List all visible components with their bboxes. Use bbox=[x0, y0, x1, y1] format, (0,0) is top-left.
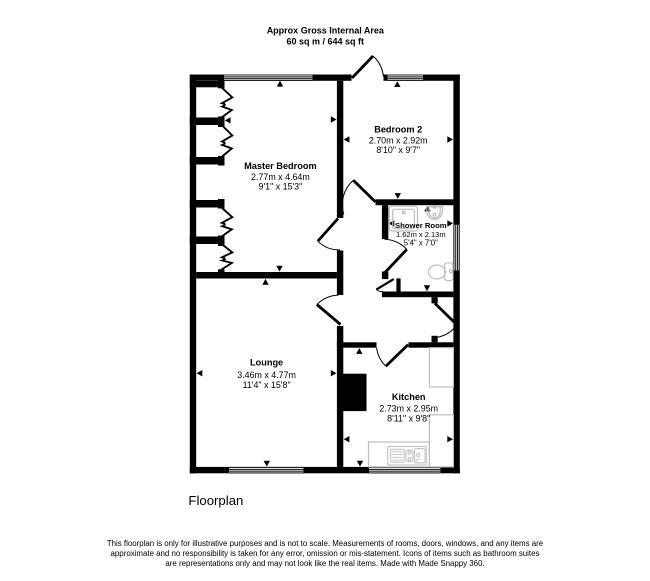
svg-text:Floorplan: Floorplan bbox=[188, 493, 243, 508]
svg-text:11'4" x 15'8": 11'4" x 15'8" bbox=[243, 380, 291, 390]
svg-text:2.70m x 2.92m: 2.70m x 2.92m bbox=[369, 135, 428, 145]
svg-text:Master Bedroom: Master Bedroom bbox=[244, 161, 317, 171]
svg-text:9'1" x 15'3": 9'1" x 15'3" bbox=[259, 181, 303, 191]
svg-text:5'4" x 7'0": 5'4" x 7'0" bbox=[404, 239, 438, 248]
svg-text:2.77m x 4.64m: 2.77m x 4.64m bbox=[251, 172, 310, 182]
svg-text:8'10" x 9'7": 8'10" x 9'7" bbox=[376, 145, 420, 155]
svg-text:are representations only and m: are representations only and may not loo… bbox=[165, 559, 484, 568]
svg-text:3.46m x 4.77m: 3.46m x 4.77m bbox=[237, 370, 296, 380]
svg-text:60 sq m / 644 sq ft: 60 sq m / 644 sq ft bbox=[287, 37, 365, 47]
svg-text:2.73m x 2.95m: 2.73m x 2.95m bbox=[379, 404, 438, 414]
svg-text:Kitchen: Kitchen bbox=[392, 392, 426, 402]
svg-text:8'11" x 9'8": 8'11" x 9'8" bbox=[387, 414, 430, 424]
svg-text:Shower Room: Shower Room bbox=[395, 221, 447, 230]
svg-text:approximate and no responsibil: approximate and no responsibility is tak… bbox=[111, 549, 540, 558]
svg-text:Approx Gross Internal Area: Approx Gross Internal Area bbox=[267, 26, 385, 36]
svg-text:Bedroom 2: Bedroom 2 bbox=[374, 124, 422, 134]
svg-text:Lounge: Lounge bbox=[250, 357, 283, 367]
svg-text:This floorplan is only for ill: This floorplan is only for illustrative … bbox=[107, 539, 544, 548]
